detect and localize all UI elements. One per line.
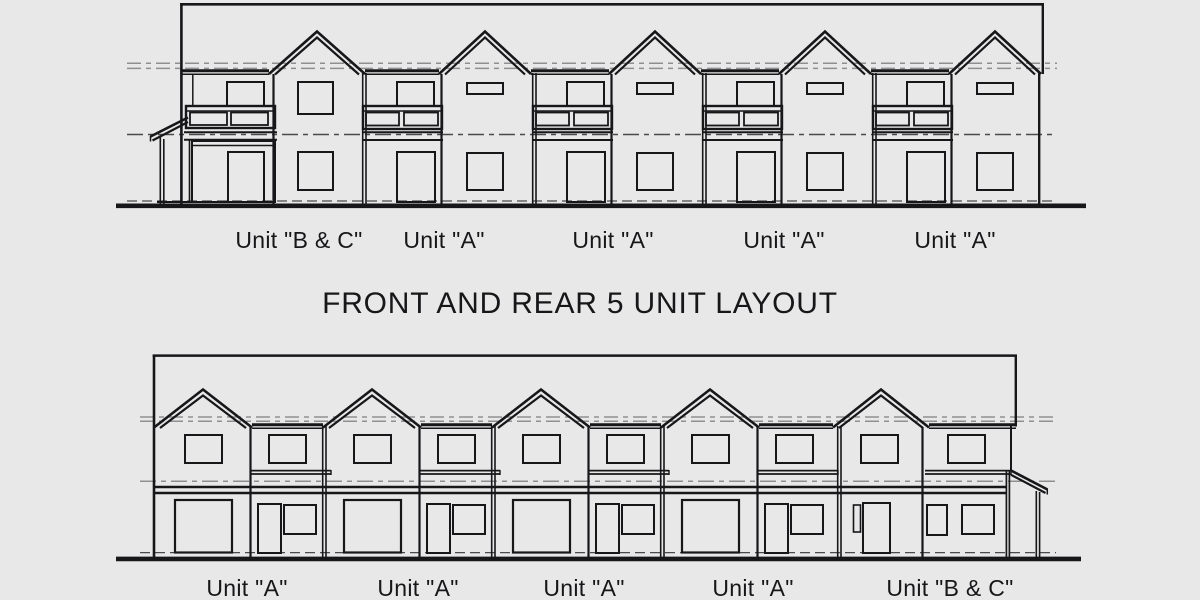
unit-label: Unit "A" xyxy=(914,227,995,253)
unit-label: Unit "A" xyxy=(206,575,287,600)
window-band-pane xyxy=(536,113,569,126)
window-band-pane xyxy=(404,113,438,126)
gable-upper-window xyxy=(523,435,560,463)
blueprint-page: { "title": "FRONT AND REAR 5 UNIT LAYOUT… xyxy=(0,0,1200,600)
lower-window xyxy=(962,505,994,534)
drawing-title: FRONT AND REAR 5 UNIT LAYOUT xyxy=(322,287,838,320)
window-band-pane xyxy=(366,113,399,126)
window-band-pane xyxy=(914,113,948,126)
entry-door xyxy=(427,504,450,553)
gable-small-window xyxy=(467,83,503,94)
gable-upper-window xyxy=(185,435,222,463)
recessed-upper-window xyxy=(776,435,813,463)
window-band-pane xyxy=(706,113,739,126)
gable-upper-window xyxy=(692,435,729,463)
gable-small-window xyxy=(977,83,1013,94)
unit-label: Unit "A" xyxy=(543,575,624,600)
elevation-sheet: Unit "B & C" Unit "A" Unit "A" Unit "A" … xyxy=(0,0,1200,600)
garage-door xyxy=(682,500,739,553)
gable-lower-window xyxy=(807,153,843,190)
gable-upper-window xyxy=(861,435,898,463)
gable-lower-window xyxy=(637,153,673,190)
window-band-pane xyxy=(190,113,227,126)
bottom-elevation-drawing xyxy=(116,355,1081,559)
entry-door xyxy=(596,504,619,553)
gable-small-window xyxy=(637,83,673,94)
unit-label: Unit "A" xyxy=(403,227,484,253)
unit-label: Unit "B & C" xyxy=(235,227,362,253)
porch-roof-line xyxy=(1011,471,1048,490)
window-band-pane xyxy=(574,113,608,126)
unit-label: Unit "A" xyxy=(572,227,653,253)
gable-lower-window xyxy=(977,153,1013,190)
upper-window xyxy=(907,82,944,106)
entry-door xyxy=(567,152,605,202)
recessed-upper-window xyxy=(269,435,306,463)
garage-door xyxy=(344,500,401,553)
unit-label: Unit "A" xyxy=(712,575,793,600)
recessed-upper-window xyxy=(438,435,475,463)
window-band-pane xyxy=(231,113,268,126)
entry-door xyxy=(863,503,890,553)
upper-window xyxy=(567,82,604,106)
lower-window xyxy=(284,505,316,534)
recessed-upper-window xyxy=(607,435,644,463)
bottom-unit-labels: Unit "A" Unit "A" Unit "A" Unit "A" Unit… xyxy=(206,575,1013,600)
entry-door xyxy=(907,152,945,202)
door-sidelight xyxy=(854,505,861,532)
upper-window xyxy=(227,82,264,106)
lower-window xyxy=(453,505,485,534)
window-band-pane xyxy=(876,113,909,126)
garage-door xyxy=(175,500,232,553)
unit-label: Unit "A" xyxy=(743,227,824,253)
lower-window xyxy=(927,505,947,535)
entry-door xyxy=(737,152,775,202)
top-unit-labels: Unit "B & C" Unit "A" Unit "A" Unit "A" … xyxy=(235,227,995,253)
top-elevation-drawing xyxy=(116,3,1086,206)
window-band-pane xyxy=(744,113,778,126)
recessed-upper-window xyxy=(948,435,985,463)
lower-window xyxy=(622,505,654,534)
entry-door xyxy=(397,152,435,202)
entry-door xyxy=(258,504,281,553)
unit-label: Unit "B & C" xyxy=(886,575,1013,600)
gable-lower-window xyxy=(298,152,333,190)
gable-small-window xyxy=(807,83,843,94)
porch-roof-inner-line xyxy=(1011,475,1046,493)
upper-window xyxy=(397,82,434,106)
garage-door xyxy=(513,500,570,553)
upper-window xyxy=(737,82,774,106)
gable-upper-window xyxy=(354,435,391,463)
gable-upper-window xyxy=(298,82,333,114)
storefront-frame xyxy=(192,141,275,202)
lower-window xyxy=(791,505,823,534)
entry-door xyxy=(228,152,264,202)
gable-lower-window xyxy=(467,153,503,190)
entry-door xyxy=(765,504,788,553)
unit-label: Unit "A" xyxy=(377,575,458,600)
